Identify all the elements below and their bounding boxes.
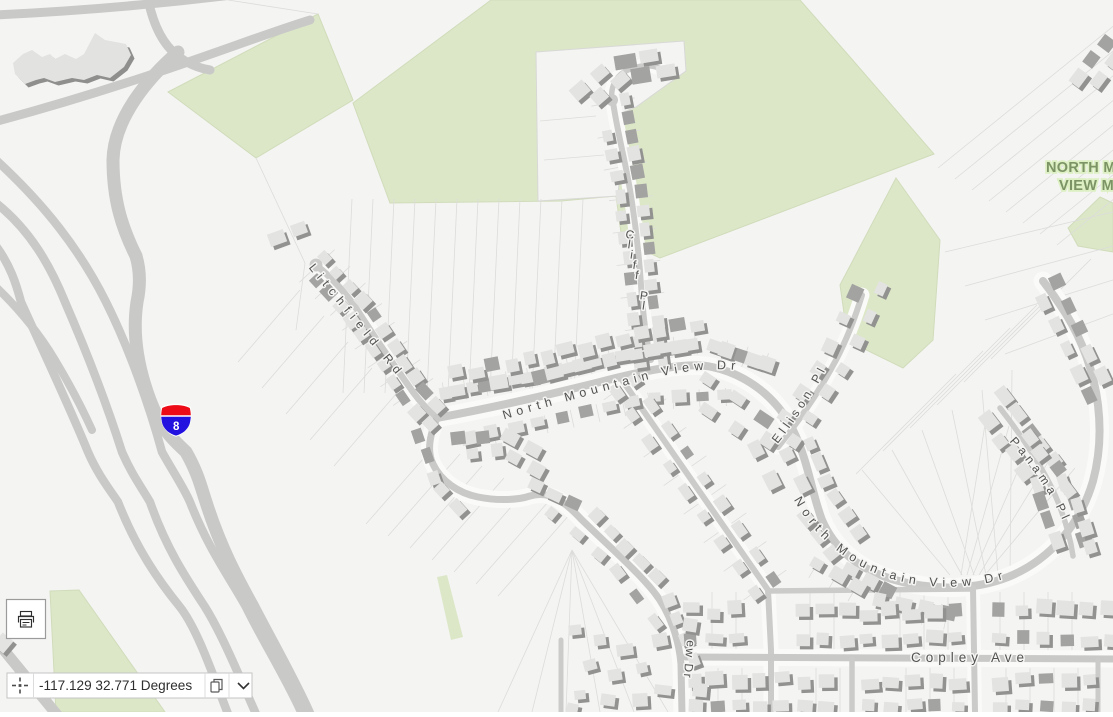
svg-text:8: 8 [173, 421, 180, 433]
svg-text:-117.129 32.771 Degrees: -117.129 32.771 Degrees [39, 678, 192, 693]
svg-text:NORTH M: NORTH M [1046, 160, 1113, 176]
svg-text:Copley Ave: Copley Ave [911, 650, 1029, 665]
svg-text:VIEW M: VIEW M [1059, 178, 1113, 194]
